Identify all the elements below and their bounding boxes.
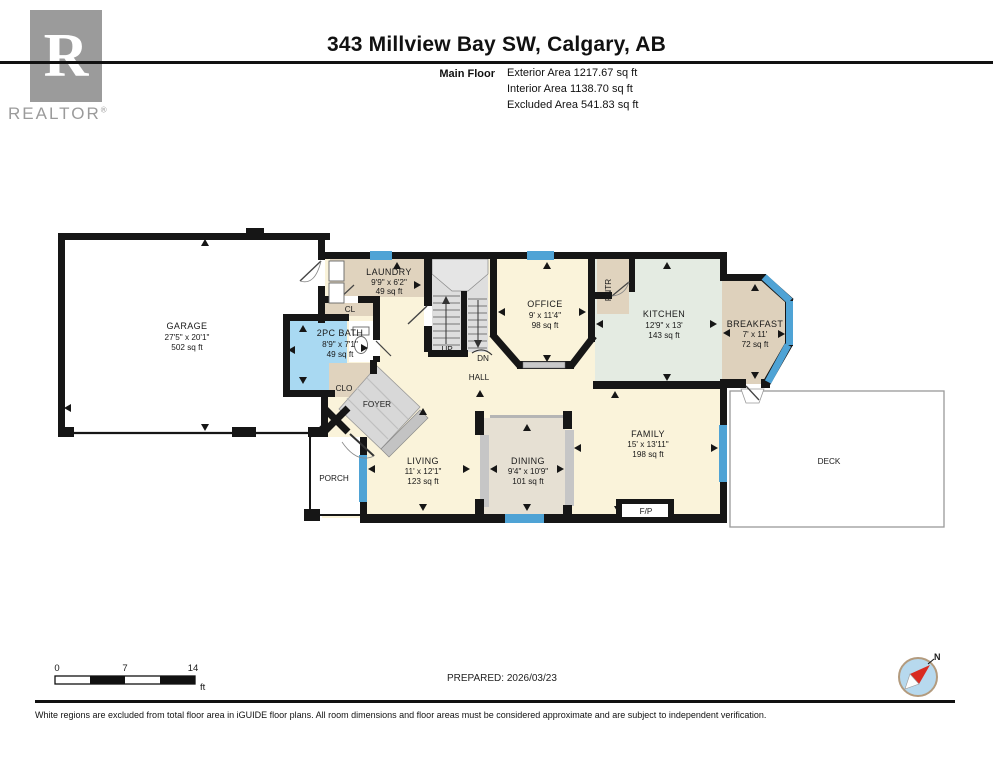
closet-clo-label: CLO — [336, 384, 353, 393]
svg-text:198 sq ft: 198 sq ft — [632, 450, 664, 459]
closet-cl-label: CL — [345, 305, 356, 314]
hall-label: HALL — [469, 373, 490, 382]
stairs-dn-label: DN — [477, 354, 489, 363]
svg-text:72 sq ft: 72 sq ft — [742, 340, 770, 349]
svg-text:OFFICE: OFFICE — [527, 299, 562, 309]
room-label-dining: DINING9'4" x 10'9"101 sq ft — [508, 456, 548, 486]
svg-text:LAUNDRY: LAUNDRY — [366, 267, 412, 277]
office-bay-window — [523, 362, 565, 368]
foyer-label: FOYER — [363, 400, 391, 409]
stairs-up-label: UP — [441, 345, 453, 354]
porch-label: PORCH — [319, 474, 349, 483]
room-label-kitchen: KITCHEN12'9" x 13'143 sq ft — [643, 309, 685, 340]
scale-tick-0: 0 — [54, 663, 59, 674]
scale-unit-label: ft — [200, 682, 206, 693]
floor-plan: GARAGE27'5" x 20'1"502 sq ft LAUNDRY9'9"… — [0, 0, 993, 768]
compass-north-label: N — [934, 652, 941, 662]
svg-text:8'9" x 7'1": 8'9" x 7'1" — [322, 340, 358, 349]
room-label-living: LIVING11' x 12'1"123 sq ft — [405, 456, 442, 486]
svg-text:15' x 13'11": 15' x 13'11" — [627, 440, 668, 449]
deck-label: DECK — [818, 457, 841, 466]
svg-text:27'5" x 20'1": 27'5" x 20'1" — [165, 333, 210, 342]
svg-text:9'9" x 6'2": 9'9" x 6'2" — [371, 278, 407, 287]
svg-text:101 sq ft: 101 sq ft — [512, 477, 544, 486]
disclaimer-text: White regions are excluded from total fl… — [35, 710, 766, 720]
svg-text:12'9" x 13': 12'9" x 13' — [645, 321, 683, 330]
svg-text:9'4" x 10'9": 9'4" x 10'9" — [508, 467, 548, 476]
svg-text:49 sq ft: 49 sq ft — [327, 350, 355, 359]
room-label-office: OFFICE9' x 11'4"98 sq ft — [527, 299, 562, 330]
svg-text:KITCHEN: KITCHEN — [643, 309, 685, 319]
floor-plan-page: R REALTOR® 343 Millview Bay SW, Calgary,… — [0, 0, 993, 768]
svg-text:LIVING: LIVING — [407, 456, 439, 466]
room-label-family: FAMILY15' x 13'11"198 sq ft — [627, 429, 668, 459]
porch-post — [304, 509, 320, 521]
svg-text:9' x 11'4": 9' x 11'4" — [529, 311, 561, 320]
fireplace-label: F/P — [640, 507, 653, 516]
scale-bar: 0 7 14 ft — [54, 663, 205, 693]
svg-text:11' x 12'1": 11' x 12'1" — [405, 467, 442, 476]
svg-text:49 sq ft: 49 sq ft — [376, 287, 404, 296]
svg-text:98 sq ft: 98 sq ft — [532, 321, 560, 330]
svg-text:7' x 11': 7' x 11' — [743, 330, 768, 339]
svg-text:2PC BATH: 2PC BATH — [317, 328, 364, 338]
svg-text:GARAGE: GARAGE — [167, 321, 208, 331]
svg-text:DINING: DINING — [511, 456, 545, 466]
prepared-date: PREPARED: 2026/03/23 — [447, 673, 557, 684]
pantry-label: PNTR — [604, 279, 613, 301]
footer-divider — [35, 700, 955, 703]
scale-tick-7: 7 — [122, 663, 127, 674]
svg-text:143 sq ft: 143 sq ft — [648, 331, 680, 340]
svg-text:502 sq ft: 502 sq ft — [171, 343, 203, 352]
scale-tick-14: 14 — [188, 663, 199, 674]
stairs — [432, 259, 488, 352]
svg-text:BREAKFAST: BREAKFAST — [727, 319, 784, 329]
svg-text:FAMILY: FAMILY — [631, 429, 665, 439]
compass: N — [899, 652, 941, 696]
svg-text:123 sq ft: 123 sq ft — [407, 477, 439, 486]
